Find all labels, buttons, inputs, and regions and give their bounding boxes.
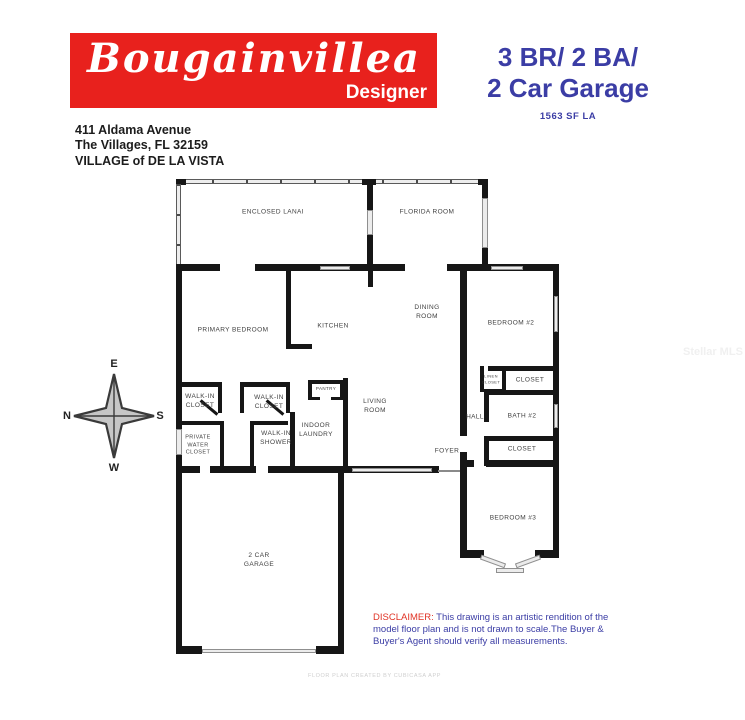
- room-label: FLORIDA ROOM: [400, 207, 455, 216]
- address-line-1: 411 Aldama Avenue: [75, 123, 224, 138]
- disclaimer-label: DISCLAIMER:: [373, 612, 434, 623]
- wall-segment: [286, 344, 312, 349]
- window: [480, 555, 506, 569]
- room-label: INDOOR LAUNDRY: [299, 421, 333, 439]
- wall-segment: [176, 264, 182, 654]
- compass-label-east: E: [110, 358, 117, 370]
- floor-plan-page: Bougainvillea Designer 411 Aldama Avenue…: [0, 0, 745, 720]
- window: [515, 555, 541, 569]
- wall-segment: [178, 264, 220, 271]
- room-label: WALK-IN CLOSET: [185, 392, 215, 410]
- compass-label-west: W: [109, 462, 119, 474]
- room-label: WALK-IN SHOWER: [260, 429, 292, 447]
- room-label: LINEN CLOSET: [482, 373, 500, 384]
- room-label: BATH #2: [508, 411, 537, 420]
- window: [496, 568, 524, 573]
- wall-segment: [343, 378, 348, 473]
- address-line-2: The Villages, FL 32159: [75, 138, 224, 153]
- room-label: ENCLOSED LANAI: [242, 207, 304, 216]
- window: [178, 179, 484, 184]
- window: [367, 210, 373, 235]
- footer-watermark: FLOOR PLAN CREATED BY CUBICASA APP: [308, 673, 441, 679]
- wall-segment: [368, 271, 373, 287]
- wall-segment: [460, 452, 467, 558]
- window: [202, 649, 316, 653]
- window: [352, 468, 432, 472]
- room-label: CLOSET: [508, 444, 536, 453]
- wall-segment: [176, 646, 202, 654]
- wall-segment: [488, 366, 555, 371]
- spec-line-1: 3 BR/ 2 BA/: [462, 42, 674, 73]
- room-label: PRIMARY BEDROOM: [198, 325, 269, 334]
- wall-segment: [367, 185, 373, 210]
- address-block: 411 Aldama Avenue The Villages, FL 32159…: [75, 123, 224, 169]
- wall-segment: [460, 460, 474, 467]
- compass-star-icon: [64, 358, 164, 470]
- wall-segment: [178, 466, 200, 473]
- wall-segment: [460, 264, 467, 436]
- wall-segment: [367, 235, 373, 265]
- wall-segment: [286, 382, 290, 413]
- wall-segment: [482, 185, 488, 198]
- window: [482, 198, 488, 248]
- room-label: FOYER: [435, 446, 459, 455]
- wall-segment: [210, 466, 256, 473]
- window: [176, 184, 181, 265]
- wall-segment: [438, 470, 462, 472]
- model-name: Bougainvillea: [84, 35, 424, 82]
- wall-segment: [486, 460, 559, 467]
- room-label: KITCHEN: [317, 321, 348, 330]
- room-label: PRIVATE WATER CLOSET: [185, 434, 211, 457]
- window: [554, 404, 558, 428]
- room-label: DINING ROOM: [414, 303, 439, 321]
- spec-summary: 3 BR/ 2 BA/ 2 Car Garage 1563 SF LA: [462, 42, 674, 123]
- room-label: LIVING ROOM: [363, 397, 387, 415]
- wall-segment: [240, 382, 244, 413]
- room-label: BEDROOM #3: [490, 513, 537, 522]
- room-label: CLOSET: [516, 375, 544, 384]
- window: [491, 266, 523, 270]
- wall-segment: [308, 380, 344, 384]
- wall-segment: [286, 271, 291, 349]
- wall-segment: [482, 248, 488, 265]
- room-label: BEDROOM #2: [488, 318, 535, 327]
- wall-segment: [338, 466, 344, 654]
- mls-watermark: Stellar MLS: [683, 346, 743, 358]
- compass-rose: E S W N: [64, 358, 164, 470]
- wall-segment: [178, 421, 224, 425]
- wall-segment: [218, 382, 222, 413]
- wall-segment: [250, 421, 288, 425]
- room-label: 2 CAR GARAGE: [244, 551, 274, 569]
- wall-segment: [484, 390, 555, 395]
- room-label: WALK-IN CLOSET: [254, 393, 284, 411]
- address-line-3: VILLAGE of DE LA VISTA: [75, 154, 224, 169]
- wall-segment: [484, 395, 489, 422]
- compass-label-south: S: [156, 410, 163, 422]
- wall-segment: [178, 382, 218, 387]
- wall-segment: [268, 466, 345, 473]
- room-label: HALL: [466, 412, 484, 421]
- wall-segment: [250, 421, 254, 470]
- window: [320, 266, 350, 270]
- disclaimer: DISCLAIMER: This drawing is an artistic …: [373, 612, 632, 648]
- wall-segment: [489, 436, 555, 441]
- spec-line-2: 2 Car Garage: [462, 73, 674, 104]
- model-tier-label: Designer: [346, 82, 427, 104]
- model-banner: Bougainvillea Designer: [70, 33, 437, 108]
- wall-segment: [308, 397, 320, 400]
- window: [554, 296, 558, 332]
- wall-segment: [316, 646, 344, 654]
- window: [176, 429, 182, 455]
- room-label: PANTRY: [316, 386, 336, 392]
- wall-segment: [220, 421, 224, 470]
- sqft-label: 1563 SF LA: [462, 111, 674, 122]
- wall-segment: [240, 382, 288, 387]
- compass-label-north: N: [63, 410, 71, 422]
